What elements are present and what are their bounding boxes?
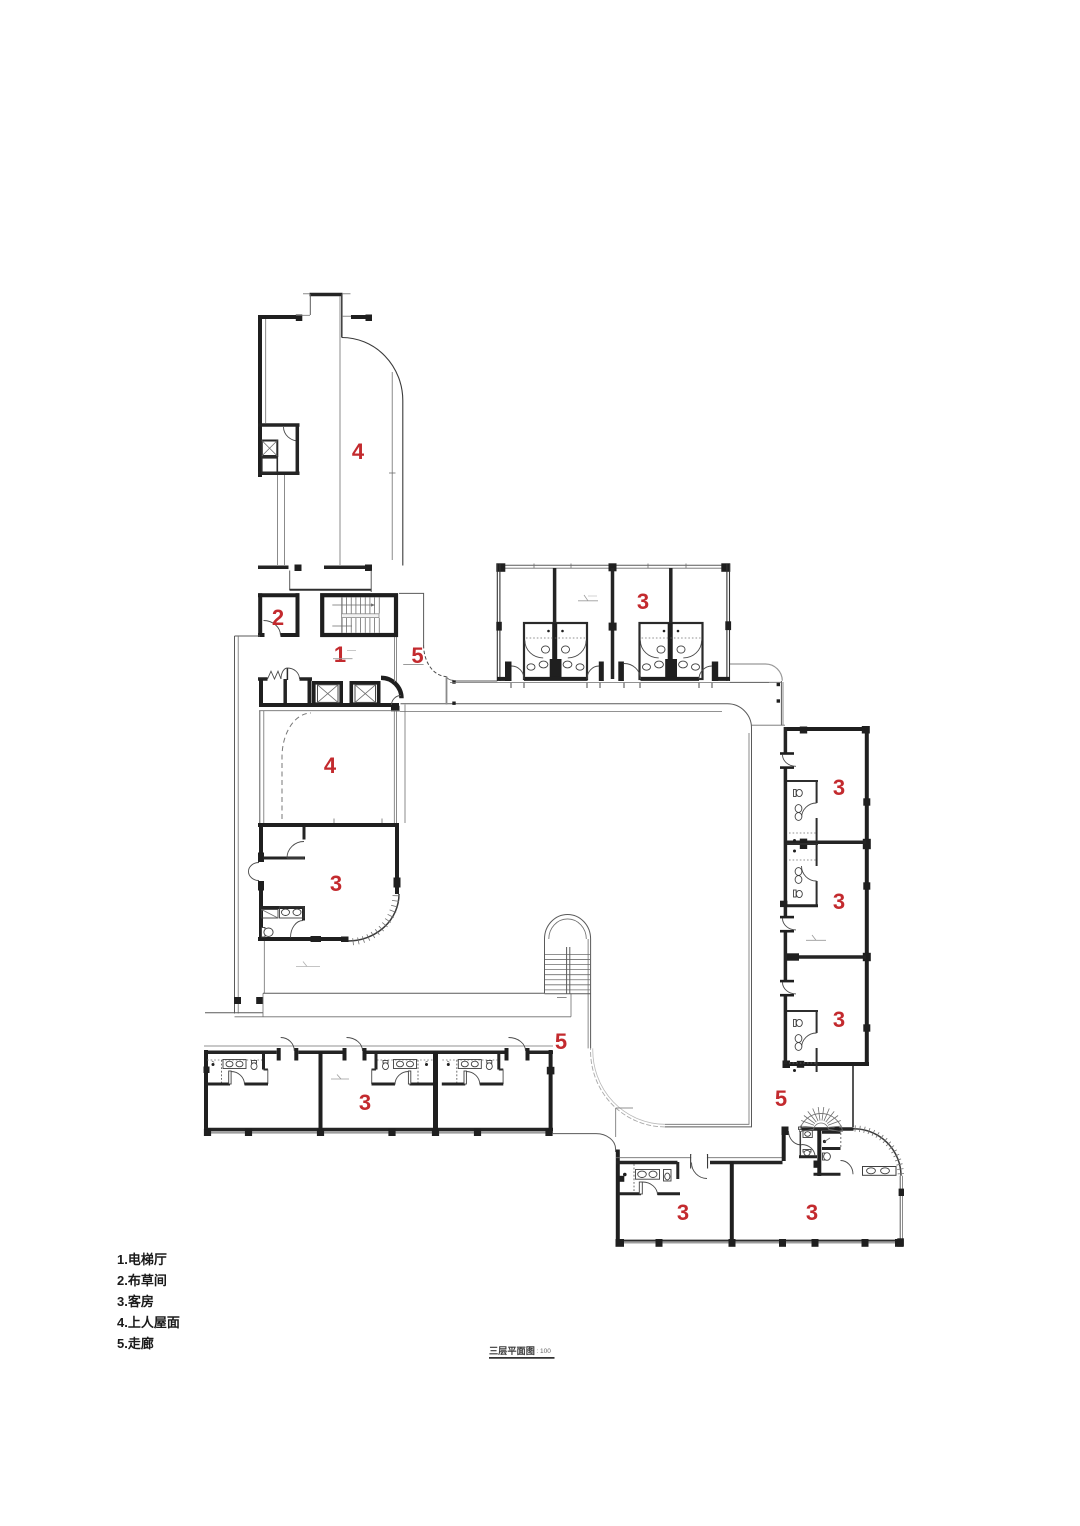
- svg-text:5.走廊: 5.走廊: [117, 1336, 154, 1351]
- svg-text:2: 2: [272, 605, 284, 630]
- svg-text:5: 5: [555, 1029, 567, 1054]
- svg-text:3: 3: [677, 1200, 689, 1225]
- svg-text:3: 3: [330, 871, 342, 896]
- svg-text:3: 3: [806, 1200, 818, 1225]
- svg-text:3: 3: [637, 589, 649, 614]
- svg-text:3.客房: 3.客房: [117, 1294, 154, 1309]
- svg-text:1: 1: [334, 642, 346, 667]
- svg-text:3: 3: [833, 775, 845, 800]
- svg-text:5: 5: [775, 1086, 787, 1111]
- svg-text:三层平面图: 三层平面图: [489, 1346, 535, 1356]
- svg-text:3: 3: [833, 889, 845, 914]
- svg-text:3: 3: [359, 1090, 371, 1115]
- svg-text:2.布草间: 2.布草间: [117, 1273, 167, 1288]
- svg-text:1 : 100: 1 : 100: [531, 1348, 551, 1355]
- svg-text:1.电梯厅: 1.电梯厅: [117, 1252, 167, 1267]
- svg-text:3: 3: [833, 1007, 845, 1032]
- svg-text:4: 4: [324, 753, 337, 778]
- svg-text:4.上人屋面: 4.上人屋面: [117, 1315, 180, 1330]
- svg-text:4: 4: [352, 439, 365, 464]
